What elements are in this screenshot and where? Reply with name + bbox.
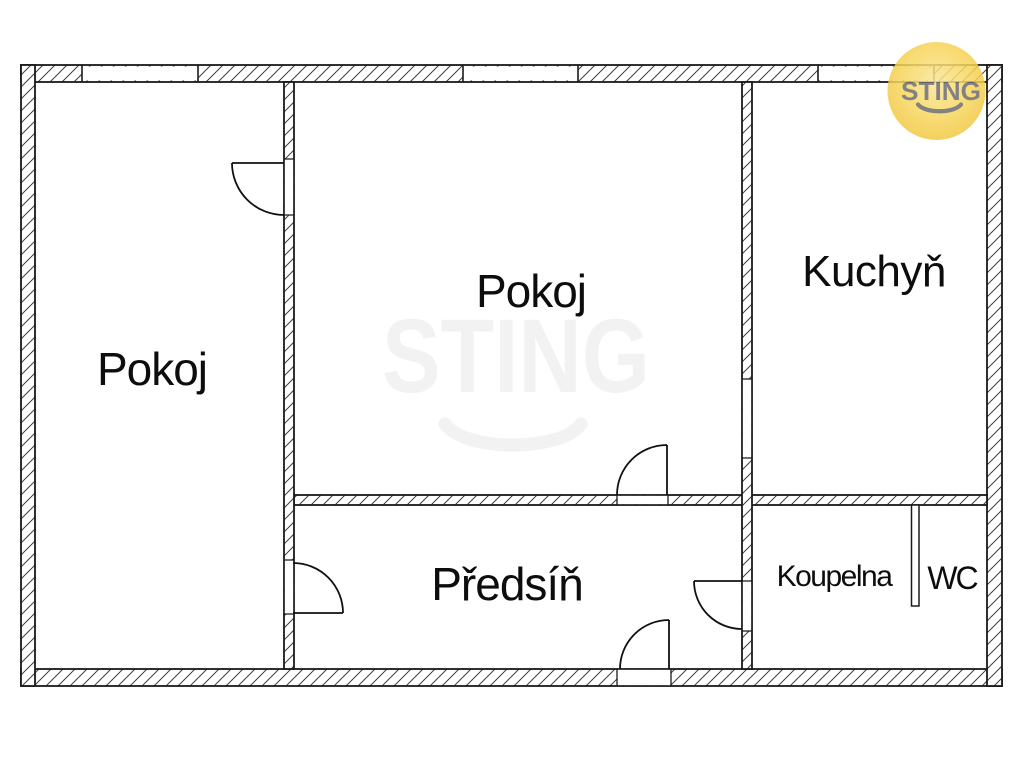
- room-label-pokoj-left: Pokoj: [97, 346, 207, 392]
- logo-text: STING: [901, 76, 981, 106]
- room-label-pokoj-center: Pokoj: [476, 268, 586, 314]
- wall-outer-bottom: [21, 669, 1002, 686]
- opening-entrance: [617, 669, 671, 686]
- opening-hall-bathroom: [742, 581, 752, 631]
- watermark-smile-icon: [445, 424, 581, 445]
- wall-wc-partition: [912, 505, 920, 606]
- door-arc: [293, 563, 343, 613]
- door-arc: [617, 445, 667, 495]
- window-2: [463, 65, 578, 82]
- wall-outer-left: [21, 65, 35, 686]
- window-1: [82, 65, 198, 82]
- door-arc: [232, 163, 284, 215]
- watermark: STING: [382, 298, 650, 445]
- opening-room2-hall: [617, 495, 668, 505]
- wall-outer-right: [987, 65, 1002, 686]
- door-arc: [620, 620, 669, 669]
- door-room1-room2: [232, 163, 284, 215]
- opening-room2-kitchen: [742, 379, 752, 458]
- room-label-kuchyn: Kuchyň: [802, 250, 946, 294]
- opening-room1-hall: [284, 560, 294, 614]
- room-label-koupelna: Koupelna: [777, 562, 892, 592]
- room-label-predsin: Předsíň: [431, 561, 583, 607]
- door-hall-bathroom: [694, 581, 742, 629]
- sting-logo: STING: [888, 42, 986, 140]
- room-label-wc: WC: [927, 562, 976, 594]
- door-arc: [694, 581, 742, 629]
- opening-room1-room2: [284, 159, 294, 215]
- door-room2-hall: [617, 445, 667, 495]
- door-entrance: [620, 620, 669, 669]
- floor-plan-page: STING: [0, 0, 1024, 768]
- door-room1-hall: [293, 563, 343, 613]
